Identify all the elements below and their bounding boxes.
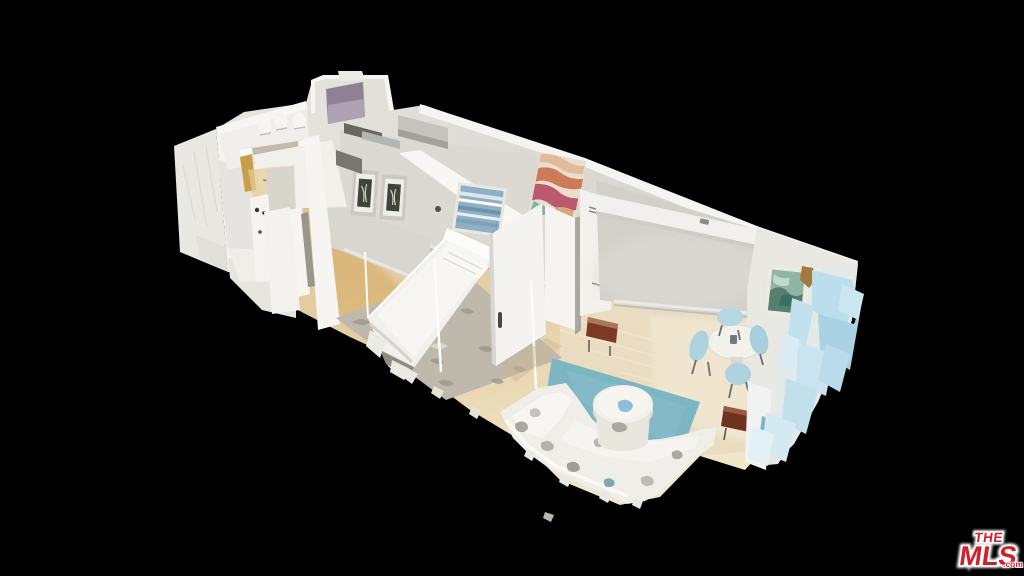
svg-text:.com: .com (1003, 559, 1023, 569)
